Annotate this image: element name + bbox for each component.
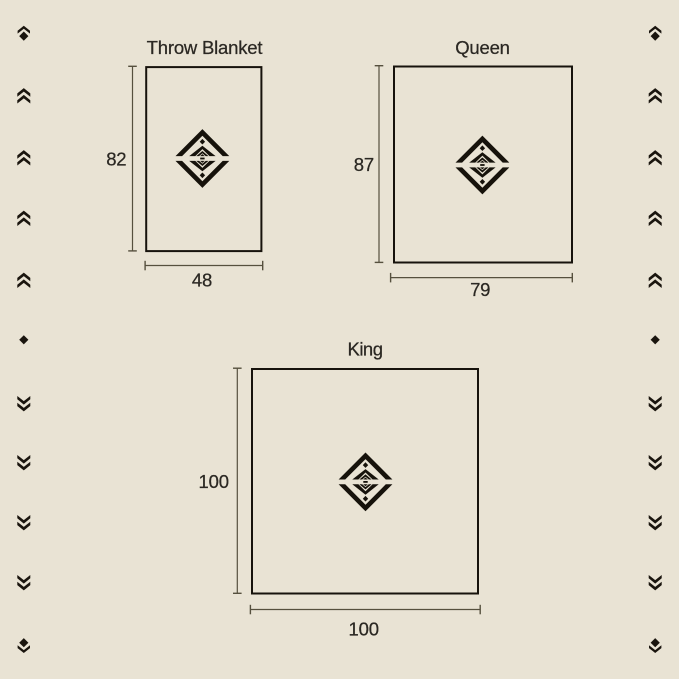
svg-text:King: King xyxy=(347,339,382,360)
svg-text:100: 100 xyxy=(349,619,379,640)
svg-text:Throw Blanket: Throw Blanket xyxy=(147,37,263,58)
svg-text:48: 48 xyxy=(192,269,212,290)
svg-text:82: 82 xyxy=(106,149,126,170)
svg-text:79: 79 xyxy=(470,279,490,300)
svg-text:87: 87 xyxy=(354,154,374,175)
svg-text:100: 100 xyxy=(199,471,229,492)
svg-text:Queen: Queen xyxy=(455,37,510,58)
